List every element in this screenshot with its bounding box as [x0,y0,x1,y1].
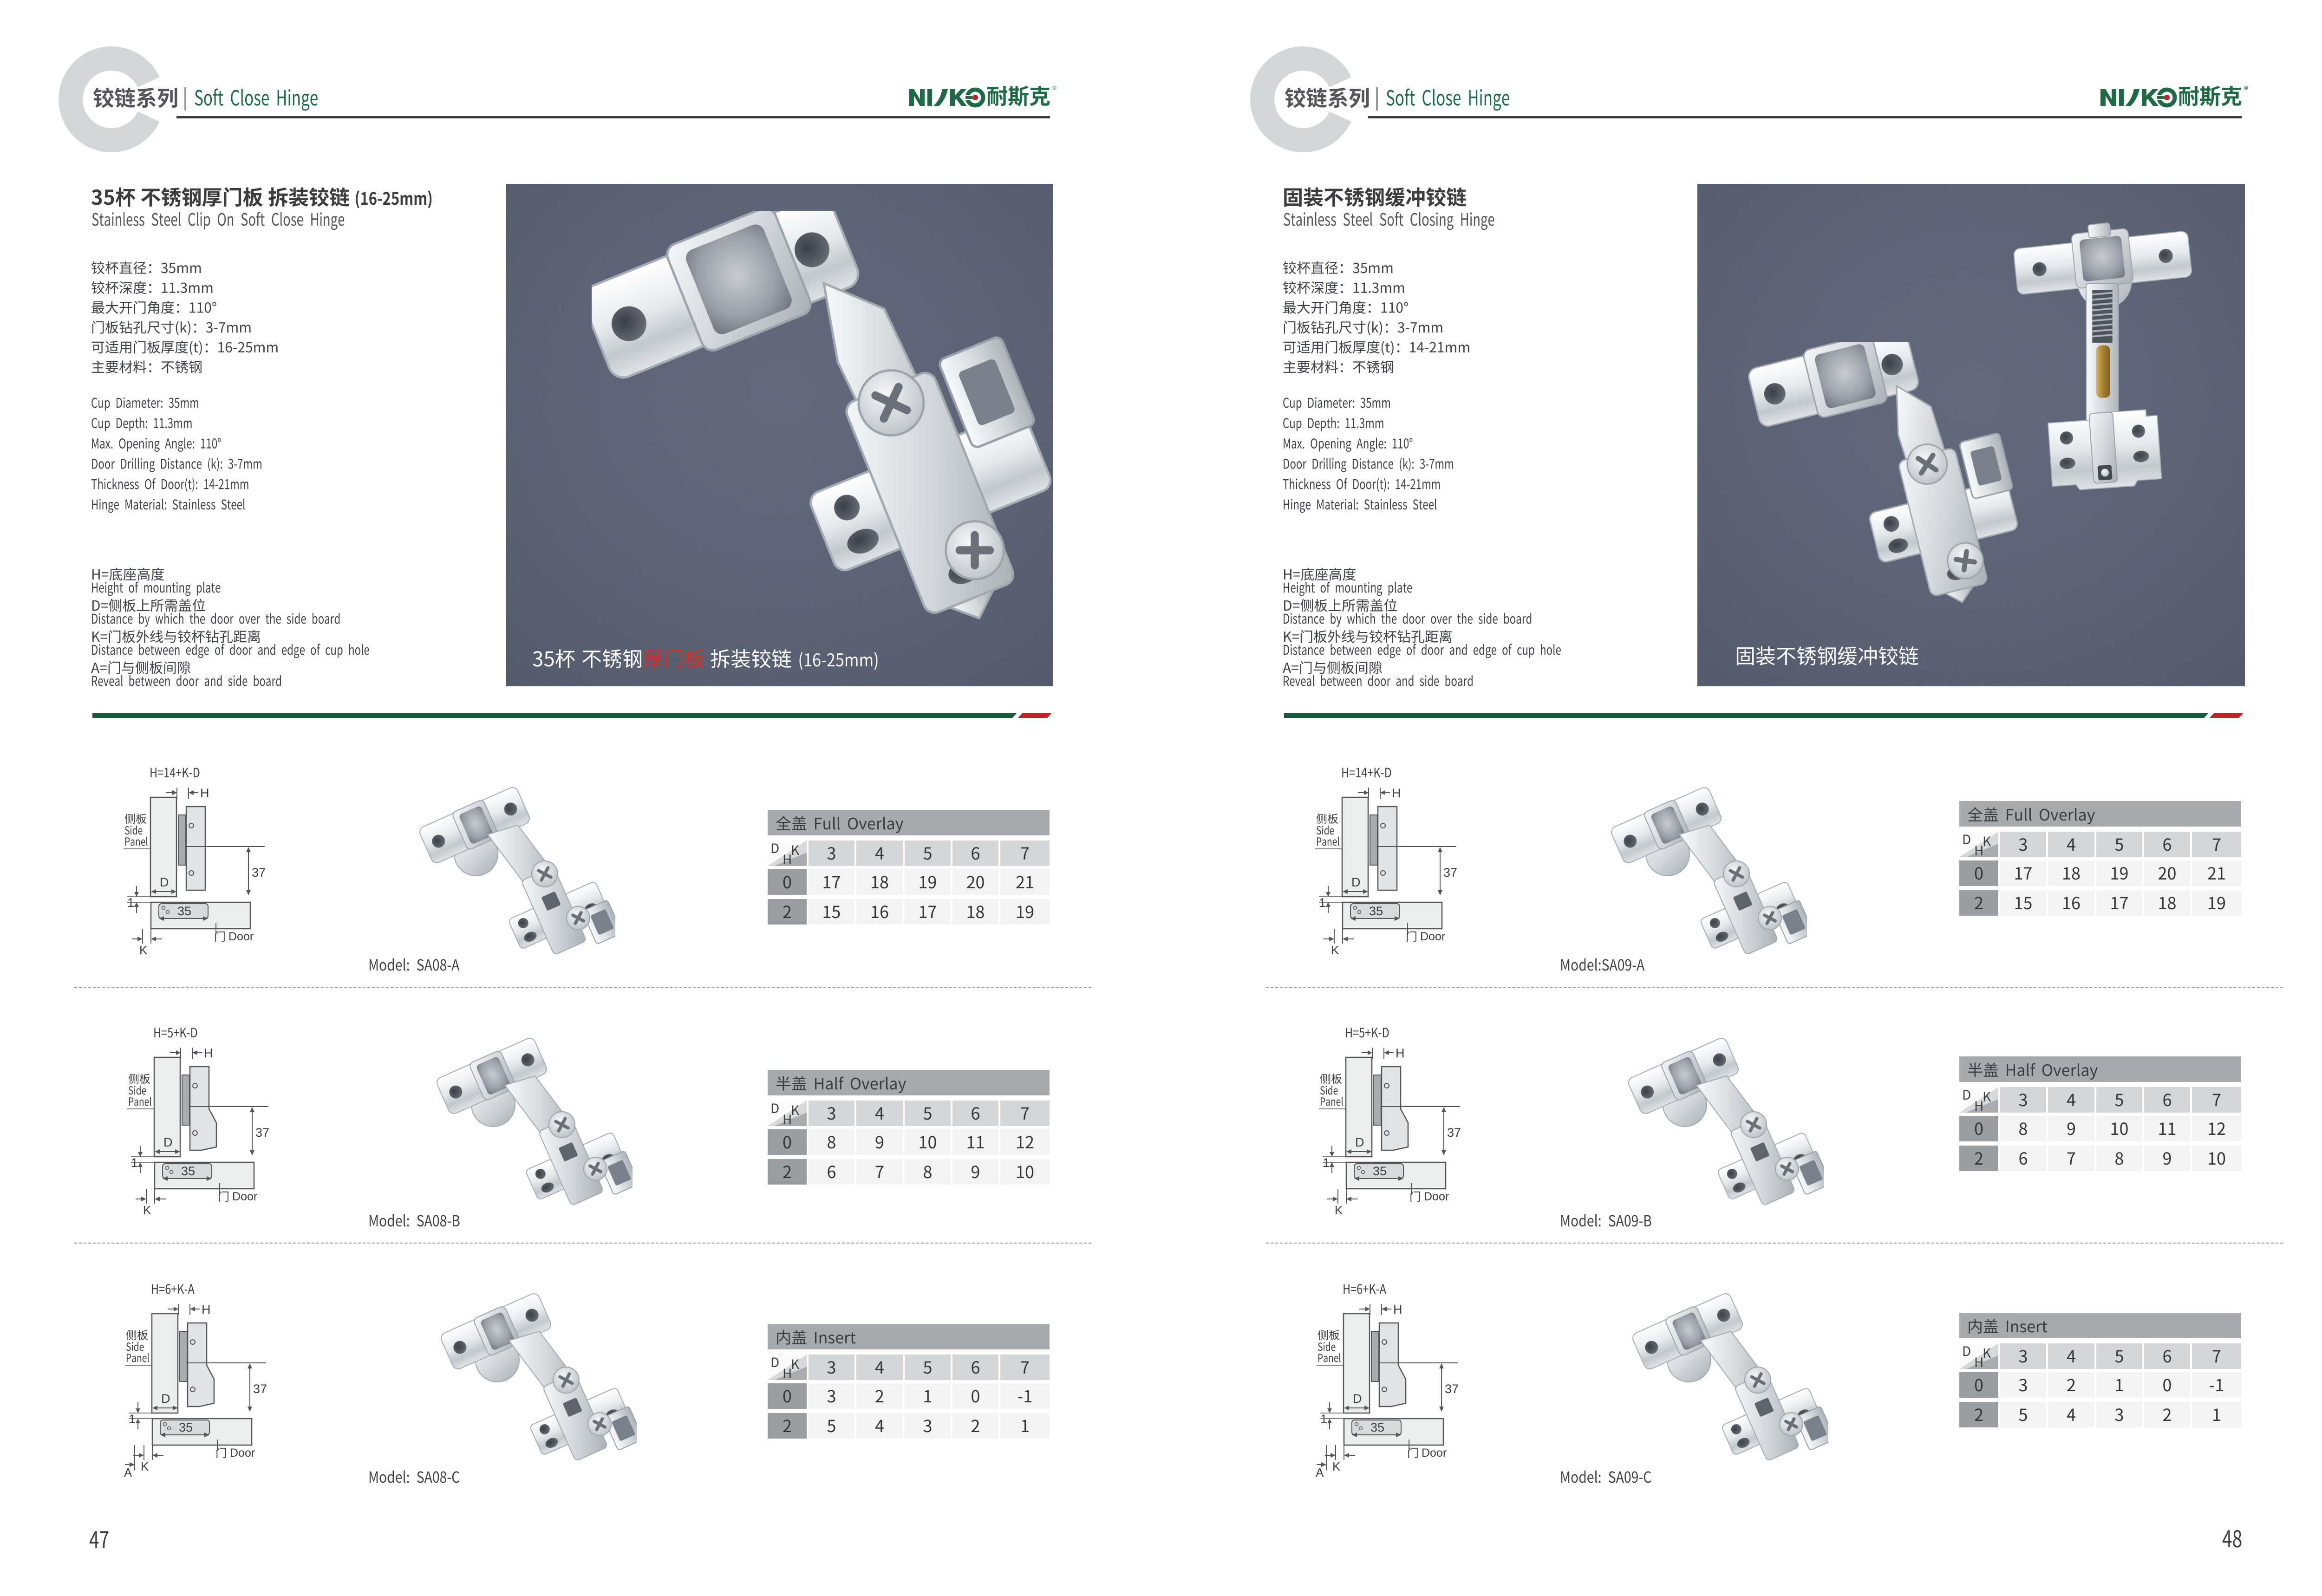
svg-text:1: 1 [131,1156,138,1170]
svg-text:K: K [1331,943,1339,957]
svg-text:35: 35 [179,1420,193,1434]
svg-text:D: D [1351,875,1361,889]
svg-text:H: H [1392,786,1401,800]
svg-text:1: 1 [1320,1412,1327,1426]
svg-text:37: 37 [252,866,266,879]
svg-text:A: A [124,1466,132,1479]
svg-text:D: D [163,1135,173,1149]
svg-text:37: 37 [1443,866,1457,879]
svg-text:37: 37 [1445,1382,1459,1396]
svg-text:37: 37 [255,1126,269,1140]
svg-text:D: D [1353,1392,1362,1406]
svg-text:1: 1 [1319,896,1326,910]
svg-text:H: H [200,786,209,800]
svg-text:K: K [1332,1459,1341,1473]
svg-text:K: K [1335,1203,1343,1217]
svg-text:A: A [1316,1466,1324,1479]
svg-text:Door: Door [1420,930,1445,943]
svg-text:K: K [143,1203,151,1217]
svg-text:35: 35 [1370,1420,1384,1434]
svg-text:37: 37 [253,1382,267,1396]
svg-text:Door: Door [230,1446,255,1459]
svg-text:1: 1 [1323,1156,1330,1170]
svg-text:H: H [1393,1303,1402,1316]
svg-text:H: H [204,1046,213,1060]
svg-text:1: 1 [127,896,134,910]
svg-text:H: H [202,1303,211,1316]
svg-text:D: D [1355,1135,1364,1149]
svg-text:D: D [160,875,169,889]
svg-text:35: 35 [177,904,191,918]
svg-text:1: 1 [129,1412,136,1426]
svg-text:D: D [161,1392,170,1406]
svg-text:K: K [141,1459,149,1473]
svg-text:35: 35 [1369,904,1383,918]
svg-text:Door: Door [1422,1446,1447,1459]
svg-text:35: 35 [1373,1164,1387,1178]
svg-text:Door: Door [1424,1190,1449,1203]
svg-text:K: K [139,943,148,957]
svg-text:Door: Door [228,930,254,943]
svg-text:35: 35 [181,1164,195,1178]
svg-text:37: 37 [1447,1126,1461,1140]
svg-text:Door: Door [232,1190,257,1203]
svg-text:H: H [1396,1046,1405,1060]
